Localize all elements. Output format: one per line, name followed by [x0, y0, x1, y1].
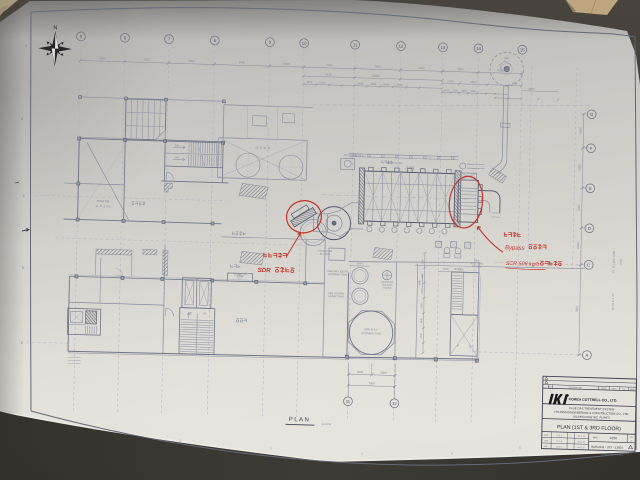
svg-text:UP: UP: [203, 311, 207, 315]
svg-text:6000: 6000: [578, 127, 582, 134]
svg-text:S=1/250: S=1/250: [321, 422, 331, 426]
svg-text:3500: 3500: [357, 370, 364, 374]
svg-text:DN UP: DN UP: [454, 268, 462, 271]
svg-text:5000: 5000: [283, 62, 290, 66]
svg-text:2700: 2700: [447, 79, 454, 83]
svg-text:UP: UP: [175, 155, 179, 159]
svg-text:2500: 2500: [443, 268, 449, 271]
svg-text:2M?: 2M?: [504, 56, 510, 60]
svg-text:6500: 6500: [99, 56, 106, 60]
svg-text:3500: 3500: [380, 371, 387, 375]
svg-text:1825: 1825: [306, 80, 312, 84]
svg-text:P: P: [457, 344, 459, 348]
svg-text:14: 14: [476, 46, 481, 51]
svg-text:O P E N: O P E N: [96, 204, 111, 208]
svg-text:G: G: [590, 112, 593, 117]
svg-text:D: D: [588, 226, 591, 231]
svg-text:1070: 1070: [443, 89, 449, 92]
svg-text:5500: 5500: [357, 81, 363, 85]
svg-text:7800: 7800: [374, 64, 381, 68]
svg-text:1750: 1750: [452, 89, 458, 92]
svg-text:5340: 5340: [383, 82, 389, 86]
svg-text:STORAGE TANK: STORAGE TANK: [328, 273, 348, 277]
svg-text:3500: 3500: [421, 318, 423, 324]
svg-text:N: N: [53, 25, 57, 31]
svg-text:6000: 6000: [576, 242, 580, 249]
svg-text:SYSTEM: SYSTEM: [472, 265, 482, 268]
svg-text:11: 11: [346, 399, 351, 404]
svg-text:SCR 506 kg/h: SCR 506 kg/h: [506, 261, 540, 268]
svg-text:1100: 1100: [422, 259, 424, 265]
svg-text:E: E: [589, 186, 592, 191]
svg-text:6050: 6050: [497, 68, 504, 72]
svg-text:4675: 4675: [528, 88, 534, 91]
svg-text:94. 9. 10: 94. 9. 10: [578, 441, 585, 443]
svg-text:2800: 2800: [470, 80, 477, 84]
svg-text:2 RD: 2 RD: [620, 259, 623, 265]
svg-text:WALKING: WALKING: [382, 284, 393, 287]
svg-text:C: C: [587, 262, 590, 267]
svg-text:SPRAY TANK: SPRAY TANK: [328, 295, 344, 298]
svg-text:3250: 3250: [422, 288, 424, 294]
svg-text:4675: 4675: [325, 72, 332, 76]
svg-text:S. J. B: S. J. B: [556, 441, 562, 443]
svg-text:2180: 2180: [319, 80, 325, 84]
svg-text:7000: 7000: [575, 306, 579, 313]
svg-text:6000: 6000: [577, 204, 581, 211]
svg-text:S. S. L: S. S. L: [557, 435, 562, 437]
svg-text:APPD: APPD: [630, 388, 636, 391]
svg-text:1450: 1450: [470, 90, 476, 93]
svg-text:94. 9. 15: 94. 9. 15: [578, 447, 585, 449]
svg-text:O P E N: O P E N: [255, 146, 270, 150]
svg-text:3: 3: [270, 447, 272, 451]
svg-text:13280: 13280: [372, 74, 380, 78]
svg-text:3500: 3500: [421, 333, 423, 339]
svg-text:MAKRONA: MAKRONA: [382, 281, 394, 284]
svg-text:3500: 3500: [357, 262, 363, 265]
svg-text:DN: DN: [175, 143, 179, 147]
svg-text:BAG FILTER: BAG FILTER: [387, 161, 403, 165]
svg-text:Bypass: Bypass: [505, 245, 525, 252]
svg-text:S. S. S: S. S. S: [556, 446, 562, 448]
svg-text:C: C: [23, 194, 26, 198]
svg-text:A: A: [585, 353, 588, 358]
svg-text:FL +11,000 3 RD: FL +11,000 3 RD: [612, 251, 616, 273]
svg-text:4: 4: [361, 452, 363, 456]
svg-text:7030: 7030: [326, 63, 333, 67]
svg-text:5: 5: [451, 452, 453, 456]
svg-text:FL +0.0 1 ST: FL +0.0 1 ST: [611, 293, 615, 310]
svg-text:DRN: DRN: [612, 388, 617, 390]
svg-text:12: 12: [399, 44, 404, 49]
svg-text:BLOWER: BLOWER: [320, 253, 331, 256]
svg-text:2: 2: [179, 439, 181, 443]
svg-text:10: 10: [302, 41, 307, 46]
svg-text:STORAGE TANK: STORAGE TANK: [361, 331, 381, 336]
svg-text:94. 9. 10: 94. 9. 10: [578, 436, 585, 438]
svg-text:TOWER: TOWER: [383, 288, 392, 290]
svg-text:6000: 6000: [143, 58, 150, 62]
svg-text:2750: 2750: [421, 303, 423, 309]
svg-text:LIME SULLY: LIME SULLY: [364, 327, 379, 331]
svg-text:3300: 3300: [396, 83, 402, 87]
svg-text:DATE: DATE: [601, 387, 607, 390]
svg-text:11: 11: [353, 42, 358, 47]
svg-text:6: 6: [519, 446, 521, 450]
svg-text:6000: 6000: [239, 60, 246, 64]
svg-text:6000: 6000: [457, 67, 464, 71]
svg-text:6000: 6000: [418, 66, 425, 70]
svg-text:55M2 0M: 55M2 0M: [97, 199, 110, 203]
svg-text:6000: 6000: [188, 59, 195, 63]
svg-text:PLAN: PLAN: [289, 417, 311, 424]
svg-text:7000: 7000: [368, 381, 375, 385]
svg-text:900: 900: [512, 81, 517, 85]
svg-text:SDR: SDR: [258, 267, 272, 274]
svg-text:5340: 5340: [370, 82, 376, 86]
svg-text:1650: 1650: [461, 90, 467, 93]
svg-text:13: 13: [441, 45, 446, 50]
svg-text:1: 1: [93, 427, 95, 431]
svg-text:D: D: [22, 266, 25, 270]
svg-text:DESCRIPTION: DESCRIPTION: [569, 387, 583, 389]
svg-text:6000: 6000: [578, 164, 582, 171]
svg-text:1/250: 1/250: [609, 436, 617, 440]
svg-text:12: 12: [392, 401, 397, 406]
svg-text:KHC -: KHC -: [593, 436, 600, 439]
svg-text:1500: 1500: [418, 279, 421, 285]
svg-text:15: 15: [520, 47, 525, 52]
